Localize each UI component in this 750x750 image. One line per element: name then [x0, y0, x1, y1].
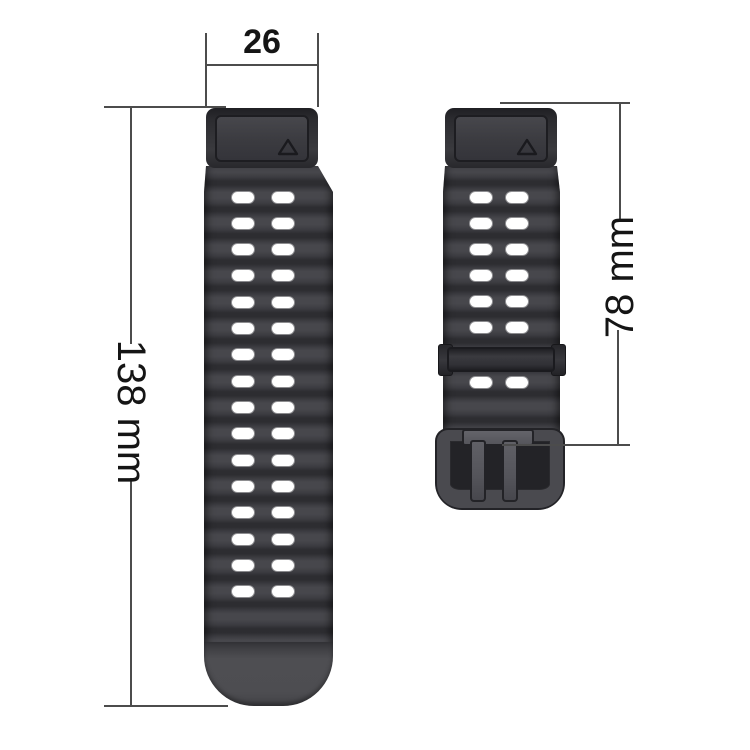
width-extension-line-left	[205, 33, 207, 107]
triangle-mark-icon	[276, 137, 300, 157]
connector-face	[454, 115, 548, 162]
width-dimension-label: 26	[222, 27, 302, 57]
short-strap-connector	[445, 108, 557, 168]
buckle-prong-left	[470, 440, 486, 502]
width-extension-line-right	[317, 33, 319, 107]
long-length-tick-top	[104, 106, 226, 108]
product-dimension-diagram: 26 138 mm 78 mm	[0, 0, 750, 750]
width-dimension-line	[205, 64, 319, 66]
long-strap-end-cap	[204, 642, 333, 706]
short-length-tick-bottom	[502, 444, 630, 446]
short-length-tick-top	[500, 102, 630, 104]
long-length-line-lower	[130, 478, 132, 707]
connector-face	[215, 115, 309, 162]
long-length-line-upper	[130, 106, 132, 344]
long-length-label: 138 mm	[109, 327, 153, 497]
buckle-opening	[450, 441, 550, 490]
long-strap-connector	[206, 108, 318, 168]
keeper-loop	[447, 347, 555, 372]
long-strap-body	[204, 166, 333, 648]
buckle-prong-right	[502, 440, 518, 502]
long-length-tick-bottom	[104, 705, 228, 707]
triangle-mark-icon	[515, 137, 539, 157]
short-strap-body	[443, 166, 560, 448]
short-length-label: 78 mm	[598, 202, 642, 352]
